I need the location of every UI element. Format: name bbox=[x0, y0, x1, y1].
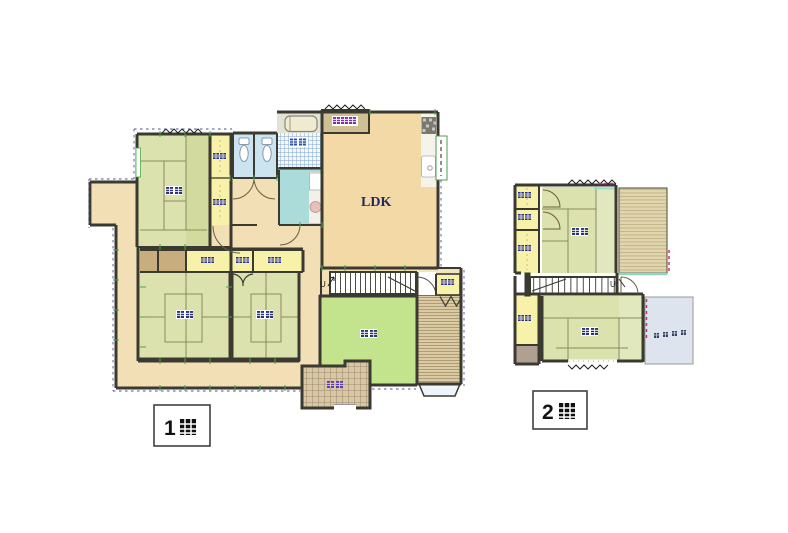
svg-text:U: U bbox=[320, 280, 326, 289]
svg-text:U: U bbox=[610, 280, 616, 289]
svg-text:1: 1 bbox=[164, 417, 176, 440]
svg-text:2: 2 bbox=[542, 401, 554, 424]
svg-text:LDK: LDK bbox=[361, 195, 391, 210]
